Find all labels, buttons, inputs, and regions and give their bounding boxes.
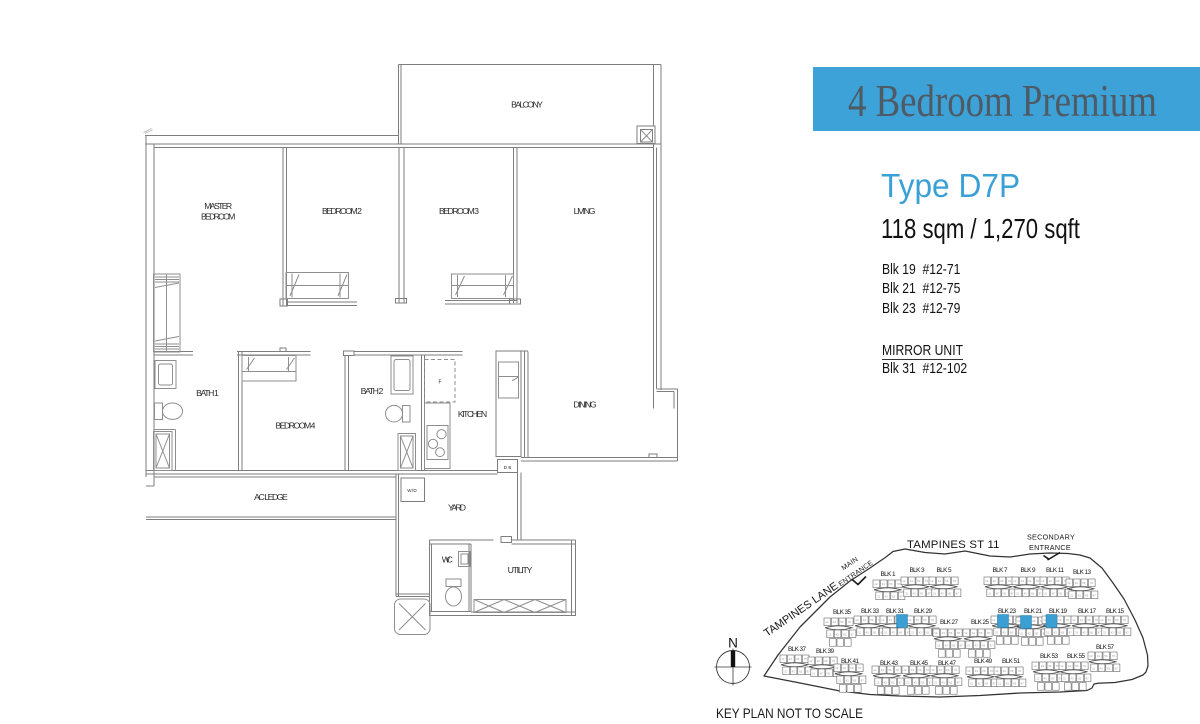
svg-text:BLK 15: BLK 15 bbox=[1106, 608, 1124, 615]
svg-text:BEDROOM 2: BEDROOM 2 bbox=[322, 206, 362, 216]
svg-text:MASTER: MASTER bbox=[204, 201, 232, 211]
svg-text:BEDROOM 3: BEDROOM 3 bbox=[439, 206, 479, 216]
svg-text:BLK 51: BLK 51 bbox=[1002, 658, 1020, 665]
svg-text:BLK 1: BLK 1 bbox=[881, 571, 896, 578]
svg-text:BLK 35: BLK 35 bbox=[833, 609, 851, 616]
svg-text:BLK 41: BLK 41 bbox=[841, 658, 859, 665]
svg-text:BATH 2: BATH 2 bbox=[361, 386, 384, 396]
svg-text:LIVING: LIVING bbox=[574, 206, 596, 216]
svg-text:WC: WC bbox=[442, 555, 453, 565]
svg-text:BLK 27: BLK 27 bbox=[940, 619, 958, 626]
svg-text:BLK 57: BLK 57 bbox=[1096, 644, 1114, 651]
svg-text:BLK 53: BLK 53 bbox=[1040, 653, 1058, 660]
svg-text:UTILITY: UTILITY bbox=[508, 565, 533, 575]
svg-text:BLK 7: BLK 7 bbox=[993, 567, 1008, 574]
svg-text:BLK 3: BLK 3 bbox=[910, 567, 925, 574]
svg-text:BLK 13: BLK 13 bbox=[1073, 569, 1091, 576]
svg-text:DB: DB bbox=[504, 465, 512, 470]
svg-text:BEDROOM 4: BEDROOM 4 bbox=[276, 421, 316, 431]
svg-text:BLK 31: BLK 31 bbox=[886, 608, 904, 615]
svg-text:SECONDARY: SECONDARY bbox=[1027, 533, 1075, 542]
svg-text:W/D: W/D bbox=[407, 488, 417, 493]
svg-text:BLK 55: BLK 55 bbox=[1067, 653, 1085, 660]
svg-text:BLK 29: BLK 29 bbox=[914, 608, 932, 615]
svg-text:KITCHEN: KITCHEN bbox=[458, 409, 487, 419]
svg-text:BLK 39: BLK 39 bbox=[816, 648, 834, 655]
svg-text:BEDROOM: BEDROOM bbox=[201, 212, 235, 222]
svg-text:F: F bbox=[438, 380, 441, 386]
svg-text:BLK 21: BLK 21 bbox=[1024, 608, 1042, 615]
svg-text:BLK 25: BLK 25 bbox=[971, 619, 989, 626]
svg-text:BLK 11: BLK 11 bbox=[1046, 567, 1064, 574]
svg-text:BLK 23: BLK 23 bbox=[998, 608, 1016, 615]
svg-text:YARD: YARD bbox=[448, 503, 466, 513]
svg-text:N: N bbox=[728, 636, 738, 651]
svg-text:BLK 45: BLK 45 bbox=[910, 660, 928, 667]
svg-text:BLK 49: BLK 49 bbox=[974, 658, 992, 665]
svg-text:DINING: DINING bbox=[573, 400, 597, 410]
svg-text:BLK 19: BLK 19 bbox=[1049, 608, 1067, 615]
svg-text:BALCONY: BALCONY bbox=[511, 99, 543, 109]
svg-text:BLK 9: BLK 9 bbox=[1021, 567, 1036, 574]
svg-text:BLK 5: BLK 5 bbox=[937, 567, 952, 574]
svg-text:AC LEDGE: AC LEDGE bbox=[254, 492, 288, 502]
svg-text:ENTRANCE: ENTRANCE bbox=[1029, 543, 1071, 552]
svg-text:BLK 47: BLK 47 bbox=[938, 660, 956, 667]
svg-text:BLK 17: BLK 17 bbox=[1078, 608, 1096, 615]
svg-text:BLK 33: BLK 33 bbox=[861, 608, 879, 615]
svg-text:TAMPINES ST 11: TAMPINES ST 11 bbox=[907, 539, 1000, 551]
svg-text:BLK 37: BLK 37 bbox=[788, 646, 806, 653]
svg-text:BLK 43: BLK 43 bbox=[880, 660, 898, 667]
svg-text:BATH 1: BATH 1 bbox=[196, 388, 219, 398]
